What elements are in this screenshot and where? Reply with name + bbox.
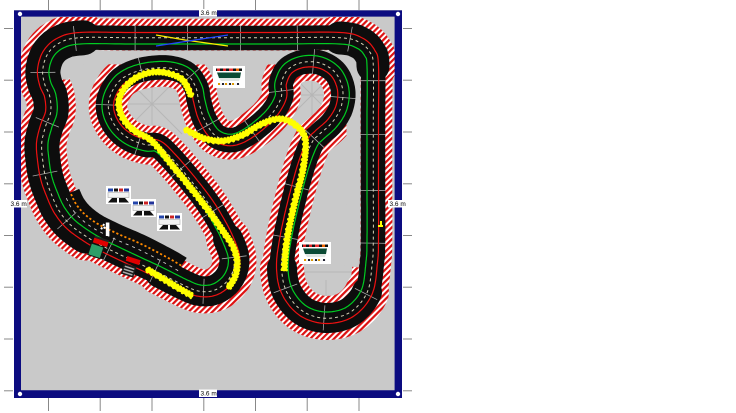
svg-text:3.6 m: 3.6 m	[11, 201, 27, 208]
svg-text:3.6 m: 3.6 m	[201, 10, 217, 17]
svg-text:3.6 m: 3.6 m	[390, 201, 406, 208]
svg-text:3.6 m: 3.6 m	[201, 391, 217, 398]
